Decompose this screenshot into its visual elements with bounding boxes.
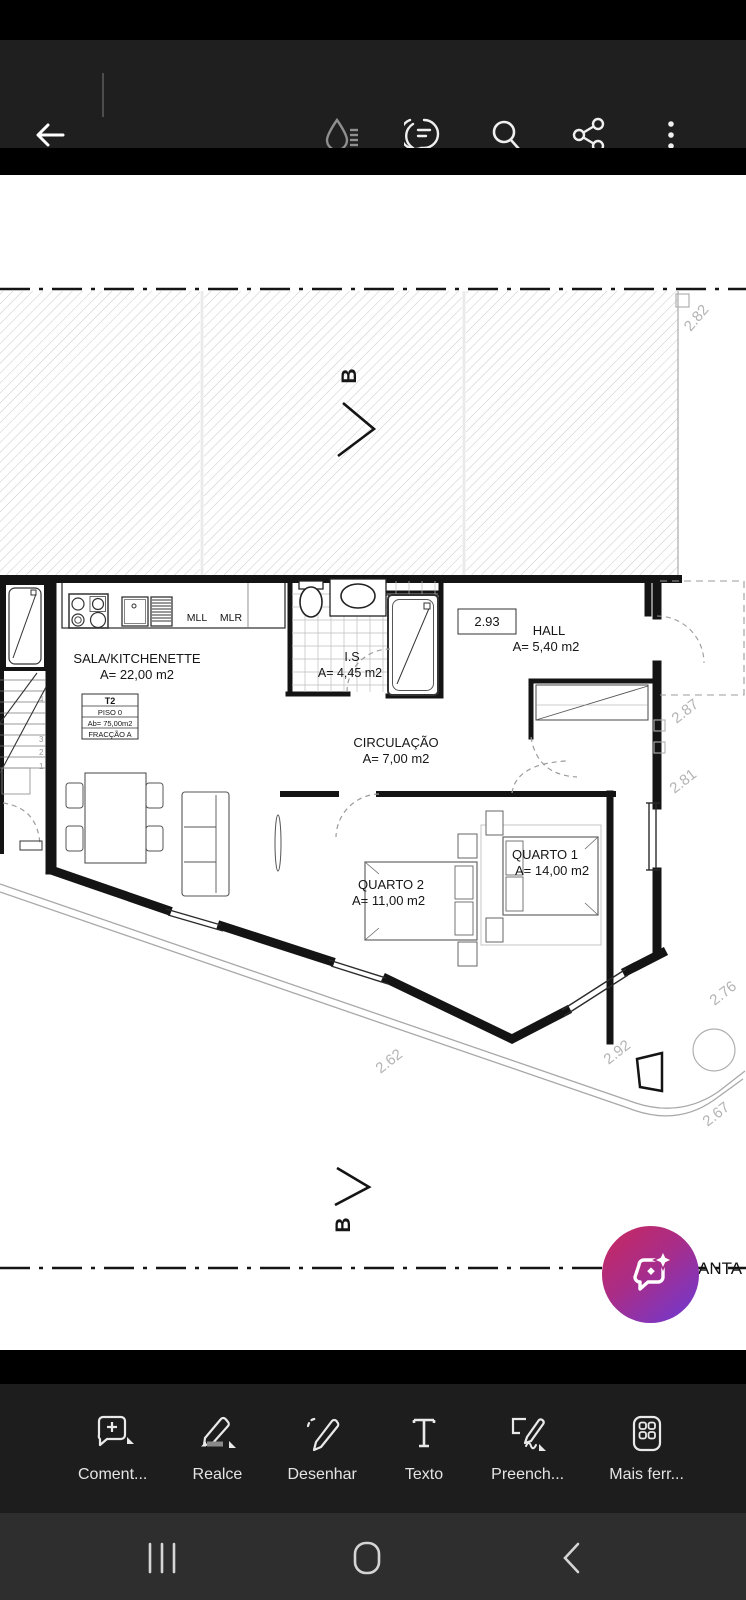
- dishwasher-icon: [151, 597, 172, 626]
- entry-porch: [657, 581, 744, 695]
- room-area-hall: A= 5,40 m2: [513, 639, 580, 654]
- recents-button[interactable]: [134, 1531, 190, 1587]
- android-navigation-bar: [0, 1513, 746, 1600]
- home-button[interactable]: [339, 1531, 395, 1587]
- annotation-toolbar: Coment... Realce Desenhar: [0, 1384, 746, 1513]
- bed-quarto1: [481, 811, 601, 945]
- back-nav-button[interactable]: [544, 1531, 600, 1587]
- page-gap-bottom: [0, 1350, 746, 1384]
- dimension-right-bedroom: 2.76: [706, 978, 739, 1009]
- room-name-quarto2: QUARTO 2: [358, 877, 424, 892]
- floor-plan-drawing: 2.82 B B: [0, 175, 746, 1350]
- quarto1-door-arc: [512, 761, 566, 793]
- dimension-right-upper: 2.87: [668, 696, 701, 727]
- fill-sign-tool-button[interactable]: Preench...: [491, 1414, 564, 1484]
- app-bar: [0, 40, 746, 148]
- dimension-bottom-middle: 2.92: [600, 1037, 633, 1068]
- room-area-sala: A= 22,00 m2: [100, 667, 174, 682]
- draw-tool-button[interactable]: Desenhar: [287, 1414, 356, 1484]
- more-tools-button[interactable]: Mais ferr...: [609, 1414, 684, 1484]
- fill-sign-icon: [506, 1414, 550, 1457]
- stair-number-4: 4: [39, 695, 44, 704]
- site-hatch-area: [0, 291, 678, 579]
- ai-assistant-fab[interactable]: [602, 1226, 699, 1323]
- comment-tool-label: Coment...: [78, 1466, 147, 1484]
- stairwell: [0, 583, 46, 850]
- highlight-tool-label: Realce: [193, 1466, 243, 1484]
- unit-box-area: Ab= 75,00m2: [88, 719, 133, 728]
- room-name-sala: SALA/KITCHENETTE: [73, 651, 200, 666]
- highlighter-icon: [195, 1414, 239, 1457]
- text-tool-button[interactable]: Texto: [402, 1414, 446, 1484]
- highlight-tool-button[interactable]: Realce: [193, 1414, 243, 1484]
- kitchen-label-mlr: MLR: [220, 612, 243, 624]
- dimension-right-lower: 2.81: [666, 766, 699, 797]
- stairwell-door-arc: [3, 803, 40, 845]
- room-area-quarto2: A= 11,00 m2: [352, 893, 425, 908]
- fill-sign-tool-label: Preench...: [491, 1466, 564, 1484]
- unit-box-t2: T2: [105, 696, 116, 706]
- quarto2-door-arc: [336, 794, 379, 837]
- kitchen-counter: [62, 583, 285, 628]
- room-name-circulacao: CIRCULAÇÃO: [353, 735, 438, 750]
- text-tool-label: Texto: [405, 1466, 443, 1484]
- sink-icon: [122, 597, 148, 626]
- drawing-title-partial: ANTA: [698, 1259, 742, 1279]
- hall-width-value: 2.93: [474, 614, 499, 629]
- room-area-is: A= 4,45 m2: [318, 666, 382, 680]
- entrance-door-arc: [657, 616, 704, 663]
- stair-number-3: 3: [39, 735, 44, 744]
- more-tools-label: Mais ferr...: [609, 1466, 684, 1484]
- pdf-viewer-screen: 2.82 B B: [0, 0, 746, 1600]
- document-canvas[interactable]: 2.82 B B: [0, 175, 746, 1350]
- dimension-bottom-left: 2.62: [372, 1046, 405, 1077]
- page-gap-top: [0, 148, 746, 175]
- more-tools-grid-icon: [625, 1414, 669, 1457]
- comment-plus-icon: [91, 1414, 135, 1457]
- sofa: [182, 792, 229, 896]
- tv-icon: [275, 815, 281, 871]
- room-area-circulacao: A= 7,00 m2: [363, 751, 430, 766]
- closet-door-arc: [531, 737, 577, 777]
- kitchen-label-mll: MLL: [187, 612, 208, 624]
- toilet-icon: [299, 581, 323, 617]
- hall-closet: [536, 685, 648, 720]
- recents-icon: [142, 1538, 182, 1581]
- site-circle: [693, 1029, 735, 1071]
- dimension-bottom-right: 2.67: [699, 1099, 732, 1130]
- stove-icon: [69, 594, 108, 628]
- unit-box-fraccao: FRACÇÃO A: [88, 730, 131, 739]
- svg-text:B: B: [332, 1217, 355, 1232]
- comment-sparkle-icon: [625, 1247, 677, 1302]
- unit-info-box: T2 PISO 0 Ab= 75,00m2 FRACÇÃO A: [82, 694, 138, 739]
- unit-box-piso: PISO 0: [98, 708, 122, 717]
- room-area-quarto1: A= 14,00 m2: [515, 863, 589, 878]
- dining-table: [66, 773, 163, 863]
- status-bar: [0, 0, 746, 40]
- room-name-quarto1: QUARTO 1: [512, 847, 578, 862]
- stair-number-2: 2: [39, 748, 44, 757]
- svg-text:B: B: [338, 368, 361, 383]
- appbar-divider: [102, 73, 104, 117]
- comment-tool-button[interactable]: Coment...: [78, 1414, 147, 1484]
- room-name-is: I.S: [344, 650, 359, 664]
- corner-pillar: [637, 1053, 662, 1091]
- back-chevron-icon: [552, 1538, 592, 1581]
- text-tool-icon: [402, 1414, 446, 1457]
- pencil-draw-icon: [300, 1414, 344, 1457]
- shower-icon: [388, 595, 438, 695]
- stair-number-1: 1: [39, 762, 44, 771]
- section-marker-b-bottom: B: [332, 1168, 369, 1233]
- home-icon: [347, 1538, 387, 1581]
- room-name-hall: HALL: [533, 623, 566, 638]
- draw-tool-label: Desenhar: [287, 1466, 356, 1484]
- washbasin-icon: [330, 579, 386, 616]
